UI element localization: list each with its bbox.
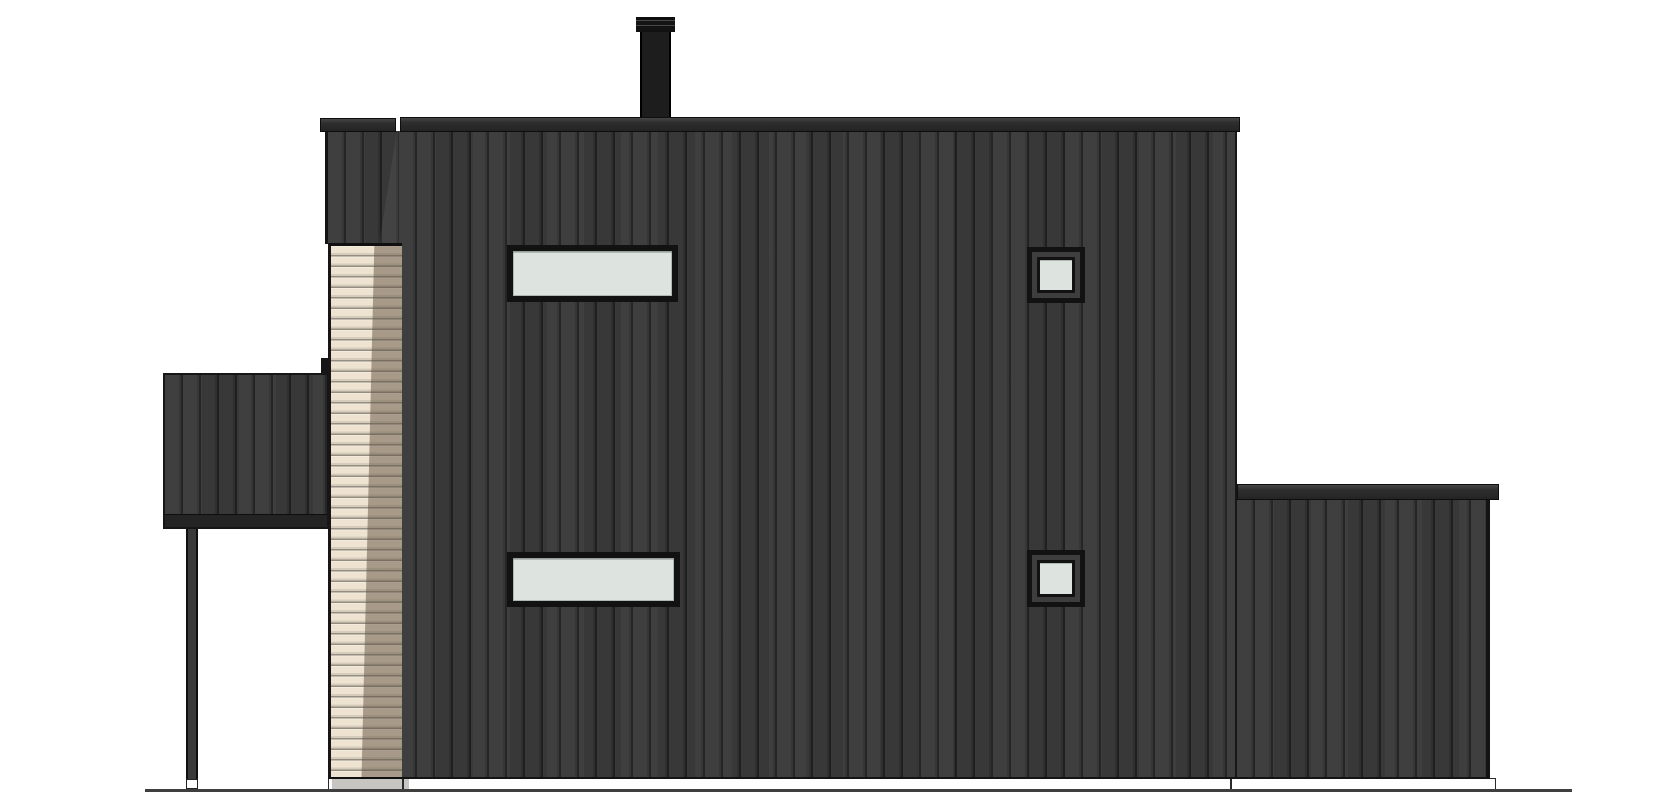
chimney	[640, 30, 671, 120]
canopy-fascia	[165, 514, 327, 527]
tower-highlight-overlay	[328, 131, 399, 244]
annex-wall	[1237, 498, 1490, 779]
chimney-cap	[636, 17, 675, 32]
main-facade-wall	[399, 131, 1237, 779]
slat-shadow-overlay	[331, 246, 402, 777]
porch-post-base	[186, 779, 198, 789]
wood-slat-column	[328, 243, 402, 779]
porch-post	[186, 529, 198, 779]
square-window-lower	[1027, 550, 1085, 607]
ribbon-window-lower	[507, 552, 680, 607]
main-roof-fascia	[400, 117, 1240, 132]
ribbon-window-upper	[507, 245, 678, 302]
stair-tower-upper-wall	[325, 131, 399, 244]
square-window-upper	[1027, 247, 1085, 303]
ground-line	[145, 789, 1572, 792]
canopy-flashing	[321, 358, 330, 374]
elevation-drawing	[0, 0, 1670, 800]
annex-roof-fascia	[1237, 484, 1499, 500]
stair-tower-roof-fascia	[320, 118, 396, 132]
square-window-lower-glass	[1037, 560, 1075, 597]
entry-canopy	[163, 373, 329, 529]
foundation-shade	[332, 779, 409, 789]
square-window-upper-glass	[1037, 257, 1075, 293]
